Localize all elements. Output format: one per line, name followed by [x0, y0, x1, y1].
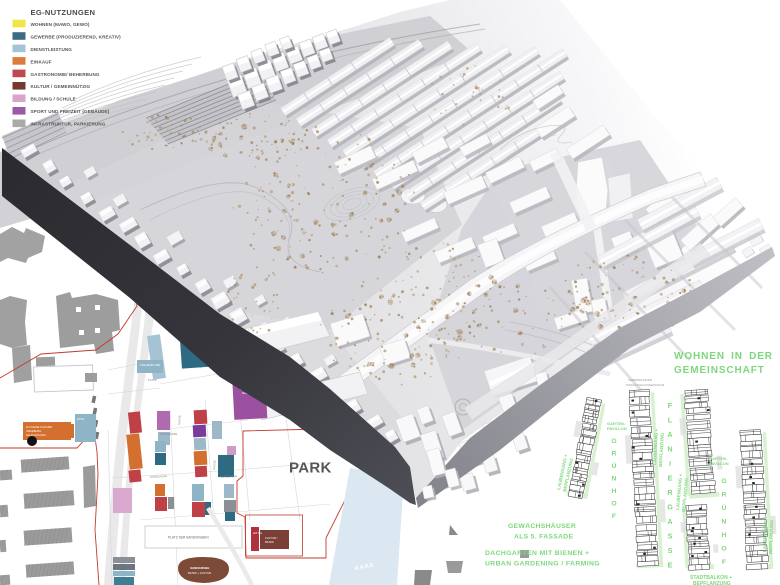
svg-text:SANDGASSE: SANDGASSE	[220, 474, 238, 479]
svg-text:PLATZ DER SANDGRUBEN: PLATZ DER SANDGRUBEN	[168, 536, 209, 540]
svg-text:GRÜNHOF: GRÜNHOF	[721, 478, 726, 566]
svg-text:LANGGASSE: LANGGASSE	[160, 432, 177, 436]
svg-text:EG-NUTZUNGEN: EG-NUTZUNGEN	[31, 8, 96, 17]
svg-text:URBAN GARDENING / FARMING: URBAN GARDENING / FARMING	[485, 561, 600, 568]
svg-text:PAVILLON: PAVILLON	[709, 461, 729, 466]
svg-text:SPORT UND FREIZEIT (GEBÄUDE): SPORT UND FREIZEIT (GEBÄUDE)	[31, 108, 110, 114]
svg-text:MUSIK + KULTUR: MUSIK + KULTUR	[188, 571, 211, 575]
svg-text:DIENSTLEISTUNG: DIENSTLEISTUNG	[31, 47, 73, 52]
svg-text:WOHNEN IN DER: WOHNEN IN DER	[674, 351, 773, 362]
svg-text:SANDGRUBE: SANDGRUBE	[190, 566, 209, 570]
svg-text:UMGEBUNG: UMGEBUNG	[26, 429, 41, 433]
svg-text:MUSIK: MUSIK	[265, 540, 274, 544]
svg-text:BEPFLANZUNG: BEPFLANZUNG	[693, 581, 731, 585]
svg-text:EINKAUF: EINKAUF	[31, 59, 52, 64]
svg-text:FRAUENKLINIK: FRAUENKLINIK	[140, 363, 160, 367]
svg-text:FLANIERGASSE: FLANIERGASSE	[667, 401, 673, 570]
svg-text:WOHNUNG/AUSSENRAUM: WOHNUNG/AUSSENRAUM	[626, 383, 665, 387]
svg-text:SANDGASSE: SANDGASSE	[150, 474, 168, 479]
svg-text:KULTUR / GEMEINNÜTZIG: KULTUR / GEMEINNÜTZIG	[31, 83, 91, 89]
svg-text:VERBINDUNGEN: VERBINDUNGEN	[628, 378, 652, 382]
svg-text:GASTRONOMIE/ BEHERBUNG: GASTRONOMIE/ BEHERBUNG	[31, 72, 100, 77]
svg-text:MITTE: MITTE	[77, 418, 85, 421]
svg-text:BILDUNG / SCHULE: BILDUNG / SCHULE	[31, 97, 76, 102]
svg-text:ZU KLEINE FLÄCHEN: ZU KLEINE FLÄCHEN	[26, 425, 52, 429]
svg-text:INFRASTRUKTUR, PARKIERUNG: INFRASTRUKTUR, PARKIERUNG	[31, 122, 106, 127]
svg-text:PARK: PARK	[289, 460, 332, 477]
svg-text:DACHGARTEN MIT BIENEN +: DACHGARTEN MIT BIENEN +	[485, 550, 590, 557]
svg-text:SALZHAUS NEU: SALZHAUS NEU	[26, 433, 46, 437]
svg-text:GASSE: GASSE	[177, 415, 182, 425]
svg-text:BEPFLANZUNG: BEPFLANZUNG	[768, 519, 774, 554]
svg-text:ALS 5. FASSADE: ALS 5. FASSADE	[514, 534, 574, 541]
svg-text:HOTEL: HOTEL	[253, 531, 263, 535]
svg-text:WOHNEN (MAWO, GEWO): WOHNEN (MAWO, GEWO)	[31, 22, 90, 27]
svg-text:BEPFLANZUNG: BEPFLANZUNG	[658, 432, 665, 467]
svg-text:GEWÄCHSHÄUSER: GEWÄCHSHÄUSER	[508, 522, 576, 530]
svg-text:PLATZ: PLATZ	[148, 378, 157, 382]
svg-text:PAVILLON: PAVILLON	[607, 426, 627, 431]
svg-text:GEMEINSCHAFT: GEMEINSCHAFT	[674, 365, 765, 376]
svg-text:GEWERBE (PRODUZIEREND, KREATIV: GEWERBE (PRODUZIEREND, KREATIV)	[31, 34, 122, 39]
svg-text:GASSE: GASSE	[212, 460, 217, 470]
svg-text:GRÜNHOF: GRÜNHOF	[611, 438, 616, 520]
